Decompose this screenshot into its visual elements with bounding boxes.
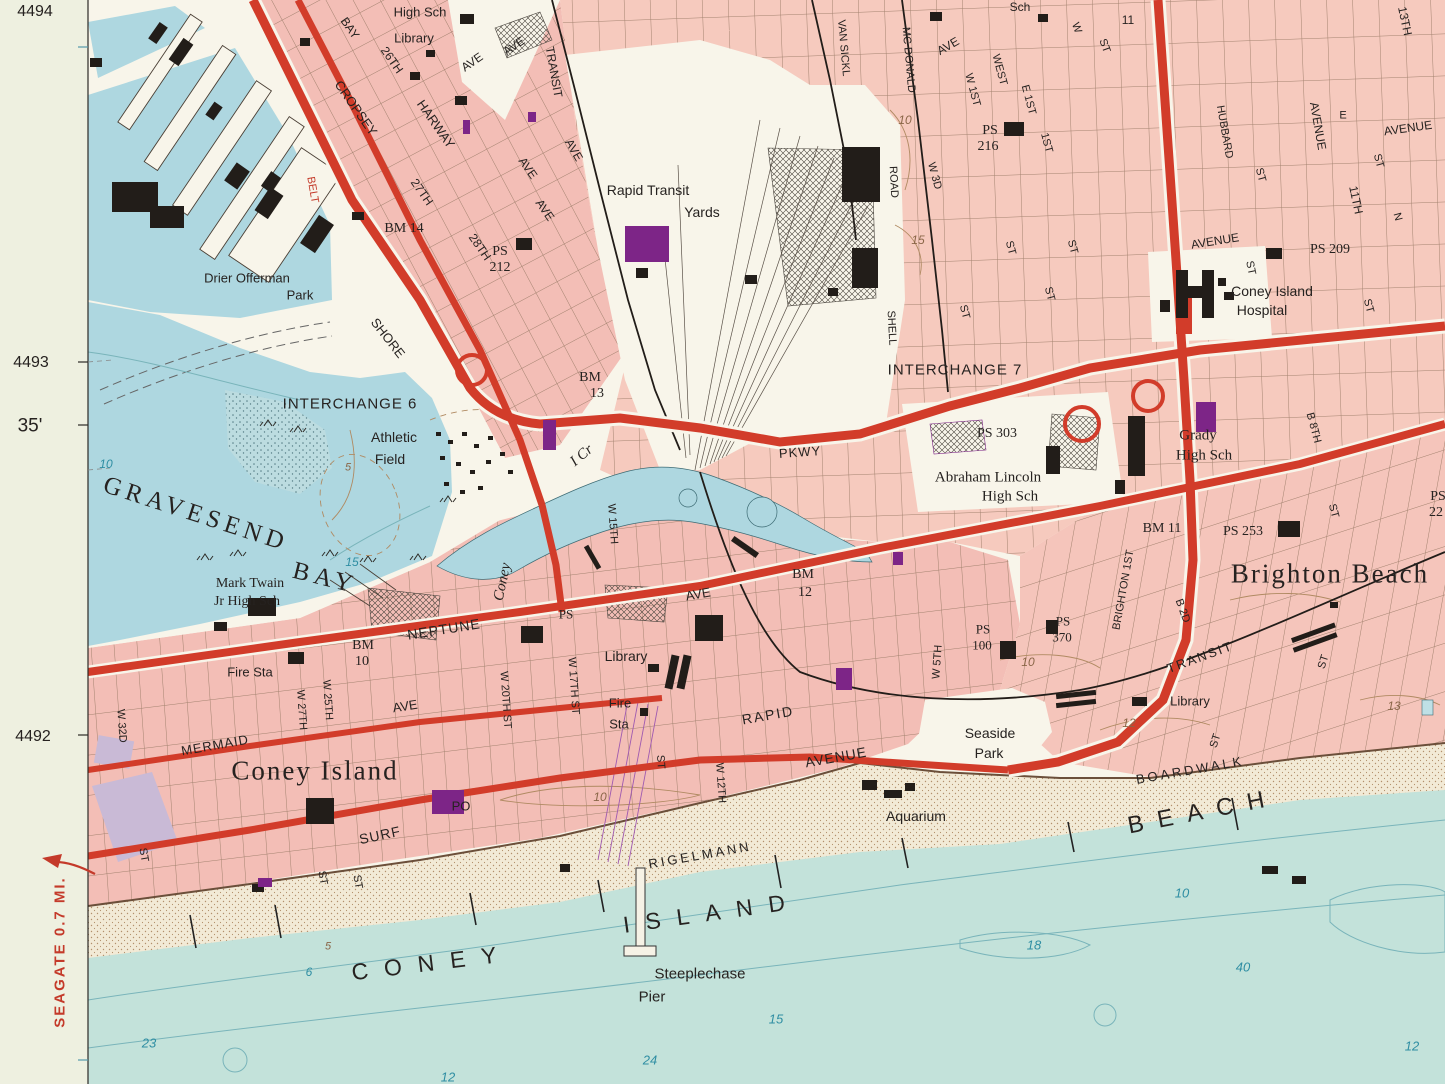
map-label-cropsey-10: CROPSEY <box>332 78 379 138</box>
map-label-st-128: ST <box>315 870 328 886</box>
map-label-4494-0: 4494 <box>17 4 53 20</box>
map-sheet: 4494449335'4492SEAGATE 0.7 MI.High SchLi… <box>0 0 1445 1084</box>
map-label-shell-40: SHELL <box>885 310 898 345</box>
map-label-hubbard-50: HUBBARD <box>1214 105 1234 160</box>
map-label-coney-island-62: Coney Island <box>1231 284 1313 298</box>
map-label-hospital-63: Hospital <box>1237 303 1288 317</box>
map-label-bm-67: BM <box>579 371 601 385</box>
map-label-fire-sta-105: Fire Sta <box>227 666 273 679</box>
map-label-w-25th-106: W 25TH <box>320 679 334 720</box>
map-label-aquarium-140: Aquarium <box>886 809 946 823</box>
map-label-avenue-59: AVENUE <box>1190 231 1240 250</box>
map-label-ps-209-60: PS 209 <box>1310 243 1350 257</box>
map-label-212-24: 212 <box>490 261 511 275</box>
map-label-w-27th-107: W 27TH <box>294 689 308 730</box>
map-label-bm-11-87: BM 11 <box>1143 522 1182 536</box>
map-label-field-71: Field <box>375 452 405 466</box>
map-label-10-35: 10 <box>898 114 911 126</box>
map-label-28th-13: 28TH <box>467 232 494 263</box>
map-label-w-1st-33: W 1ST <box>962 72 981 107</box>
map-label-ps-23: PS <box>492 245 508 259</box>
map-label-ave-114: AVE <box>685 585 712 602</box>
map-label-rapid-119: RAPID <box>741 704 795 727</box>
map-label-athletic-70: Athletic <box>371 430 417 444</box>
map-label-road-39: ROAD <box>887 166 900 198</box>
map-label-w-5th-130: W 5TH <box>931 645 944 680</box>
map-label-370-134: 370 <box>1052 631 1072 644</box>
map-label-22-90: 22 <box>1429 506 1443 520</box>
map-label-ps-253-88: PS 253 <box>1223 525 1263 539</box>
map-label-ave-15: AVE <box>501 34 527 57</box>
map-label-bay-8: BAY <box>338 15 361 41</box>
map-label-st-127: ST <box>136 847 149 863</box>
map-label-pkwy-69: PKWY <box>778 444 821 460</box>
map-label-12-156: 12 <box>1405 1040 1419 1053</box>
map-label-abraham-lincoln-73: Abraham Lincoln <box>935 471 1041 486</box>
map-label-st-51: ST <box>1253 167 1267 183</box>
map-label-po-126: PO <box>452 800 471 813</box>
map-label-st-61: ST <box>1243 260 1257 276</box>
map-label-neptune-102: NEPTUNE <box>406 616 481 641</box>
map-label-12-99: 12 <box>1122 717 1135 729</box>
map-labels-layer: 4494449335'4492SEAGATE 0.7 MI.High SchLi… <box>0 0 1445 1084</box>
map-label-st-117: ST <box>654 755 666 770</box>
map-label-w-42: W <box>1069 21 1083 35</box>
map-label-24-151: 24 <box>643 1054 657 1067</box>
map-label-pier-146: Pier <box>639 990 666 1005</box>
map-label-high-sch-76: High Sch <box>1176 449 1232 464</box>
map-label-w-17th-st-109: W 17TH ST <box>566 657 581 715</box>
map-label-st-49: ST <box>1042 286 1056 302</box>
map-label-shore-21: SHORE <box>369 316 408 360</box>
map-label-grady-75: Grady <box>1179 429 1217 444</box>
map-label-100-132: 100 <box>972 639 992 652</box>
map-label-ps-303-72: PS 303 <box>977 427 1017 441</box>
map-label-coney-143: CONEY <box>350 942 513 985</box>
map-label-10-83: 10 <box>99 458 112 470</box>
map-label-harway-11: HARWAY <box>415 98 457 151</box>
map-label-gravesend-78: GRAVESEND <box>100 472 291 555</box>
map-label-seaside-136: Seaside <box>965 726 1016 740</box>
map-label-library-111: Library <box>605 649 648 663</box>
map-label-mc-donald-30: MC DONALD <box>900 27 917 94</box>
map-label-216-37: 216 <box>978 140 999 154</box>
map-label-interchange-7-65: INTERCHANGE 7 <box>888 363 1023 378</box>
map-label-18-154: 18 <box>1027 939 1041 952</box>
map-label-12-152: 12 <box>441 1071 455 1084</box>
map-label-5-147: 5 <box>325 942 331 953</box>
map-label-13th-56: 13TH <box>1396 5 1414 36</box>
map-label-st-94: ST <box>1317 654 1332 671</box>
map-label-w-15th-82: W 15TH <box>605 503 619 544</box>
map-label-13-68: 13 <box>590 387 604 401</box>
map-label-13-100: 13 <box>1387 700 1400 712</box>
map-label-b-2d-95: B 2D <box>1173 598 1192 625</box>
map-label-b-8th-92: B 8TH <box>1304 412 1323 445</box>
map-label-st-46: ST <box>1003 240 1017 256</box>
map-label-27th-12: 27TH <box>409 177 436 208</box>
map-label-ps-131: PS <box>976 623 990 636</box>
map-label-e-1st-34: E 1ST <box>1019 84 1038 116</box>
map-label-11th-57: 11TH <box>1347 185 1365 215</box>
map-label-park-137: Park <box>975 746 1004 760</box>
map-label-park-26: Park <box>287 289 314 302</box>
map-label-surf-125: SURF <box>358 824 402 846</box>
map-label-coney-80: Coney <box>492 562 515 603</box>
map-label-ave-18: AVE <box>516 155 539 181</box>
map-label-ps-89: PS <box>1430 490 1445 504</box>
map-label-ps-133: PS <box>1056 615 1070 628</box>
map-label-i-cr-81: I Cr <box>568 442 596 469</box>
map-label-rapid-transit-27: Rapid Transit <box>607 183 689 197</box>
map-label-st-47: ST <box>1065 239 1079 255</box>
map-label-library-6: Library <box>394 32 434 45</box>
map-label-bm-115: BM <box>792 568 814 582</box>
map-label-ave-31: AVE <box>935 35 961 57</box>
map-label-n-58: N <box>1391 212 1404 223</box>
map-label-high-sch-74: High Sch <box>982 490 1038 505</box>
map-label-drier-offerman-25: Drier Offerman <box>204 272 290 285</box>
map-label-jr-high-sch-86: Jr High Sch <box>214 595 280 609</box>
map-label-w-12th-118: W 12TH <box>713 762 727 803</box>
map-label-26th-9: 26TH <box>379 45 406 76</box>
map-label-interchange-6-66: INTERCHANGE 6 <box>283 397 418 412</box>
map-label-40-155: 40 <box>1236 961 1250 974</box>
map-label-st-129: ST <box>350 874 363 890</box>
map-label-st-93: ST <box>1326 503 1340 519</box>
map-label-st-64: ST <box>1361 298 1375 314</box>
map-label-10-138: 10 <box>593 791 606 803</box>
map-label-10-104: 10 <box>355 655 369 669</box>
map-label-bm-14-22: BM 14 <box>384 222 423 236</box>
map-label-seagate-0-7-mi-4: SEAGATE 0.7 MI. <box>53 876 68 1027</box>
map-label-avenue-120: AVENUE <box>804 745 868 770</box>
map-label-ave-19: AVE <box>533 197 556 223</box>
map-label-steeplechase-145: Steeplechase <box>655 967 746 982</box>
map-label-avenue-52: AVENUE <box>1308 101 1328 151</box>
map-label-west-32: WEST <box>990 53 1009 87</box>
map-label-sta-113: Sta <box>609 718 629 731</box>
map-label-st-48: ST <box>957 304 971 320</box>
map-label-10-135: 10 <box>1021 656 1034 668</box>
map-label-yards-28: Yards <box>684 205 720 219</box>
map-label-mark-twain-85: Mark Twain <box>216 577 284 591</box>
map-label-5-77: 5 <box>345 463 351 474</box>
map-label-w-3d-38: W 3D <box>925 161 943 190</box>
map-label-23-149: 23 <box>142 1037 156 1050</box>
map-label-avenue-54: AVENUE <box>1383 119 1433 138</box>
map-label-coney-island-124: Coney Island <box>231 758 398 785</box>
map-label-e-53: E <box>1339 111 1346 122</box>
map-label-library-98: Library <box>1170 695 1210 708</box>
map-label-van-sickl-29: VAN SICKL <box>835 19 851 76</box>
map-label-ps-110: PS <box>559 608 573 621</box>
map-label-15-41: 15 <box>911 234 924 246</box>
map-label-st-55: ST <box>1371 153 1385 169</box>
map-label-35-2: 35' <box>18 417 43 436</box>
map-label-rigelmann-141: RIGELMANN <box>648 840 753 871</box>
map-label-w-32d-123: W 32D <box>114 709 127 743</box>
map-label-ps-36: PS <box>982 124 998 138</box>
map-label-4493-1: 4493 <box>13 355 49 371</box>
map-label-15-150: 15 <box>769 1013 783 1026</box>
map-label-sch-7: Sch <box>1010 1 1031 13</box>
map-label-brighton-1st-96: BRIGHTON 1ST <box>1112 549 1137 631</box>
map-label-12-116: 12 <box>798 586 812 600</box>
map-label-11-43: 11 <box>1122 14 1134 26</box>
map-label-st-44: ST <box>1096 38 1111 55</box>
map-label-boardwalk-139: BOARDWALK <box>1135 754 1245 786</box>
map-label-high-sch-5: High Sch <box>394 6 447 19</box>
map-label-ave-17: AVE <box>563 137 585 163</box>
map-label-beach-142: BEACH <box>1126 786 1280 839</box>
map-label-10-153: 10 <box>1175 887 1189 900</box>
map-label-fire-112: Fire <box>609 697 631 710</box>
map-label-transit-16: TRANSIT <box>544 46 565 99</box>
map-label-w-20th-st-108: W 20TH ST <box>498 671 513 729</box>
map-label-6-148: 6 <box>306 966 313 978</box>
map-label-bm-103: BM <box>352 639 374 653</box>
map-label-island-144: ISLAND <box>622 889 803 937</box>
map-label-brighton-beach-91: Brighton Beach <box>1231 561 1429 588</box>
map-label-15-84: 15 <box>345 556 358 568</box>
map-label-belt-20: BELT <box>304 176 319 204</box>
map-label-mermaid-121: MERMAID <box>180 733 250 758</box>
map-label-st-101: ST <box>1209 733 1224 750</box>
map-label-transit-97: TRANSIT <box>1165 639 1235 675</box>
map-label-1st-45: 1ST <box>1038 132 1054 154</box>
map-label-ave-14: AVE <box>459 50 485 73</box>
map-label-4492-3: 4492 <box>15 729 51 745</box>
map-label-ave-122: AVE <box>392 698 419 715</box>
